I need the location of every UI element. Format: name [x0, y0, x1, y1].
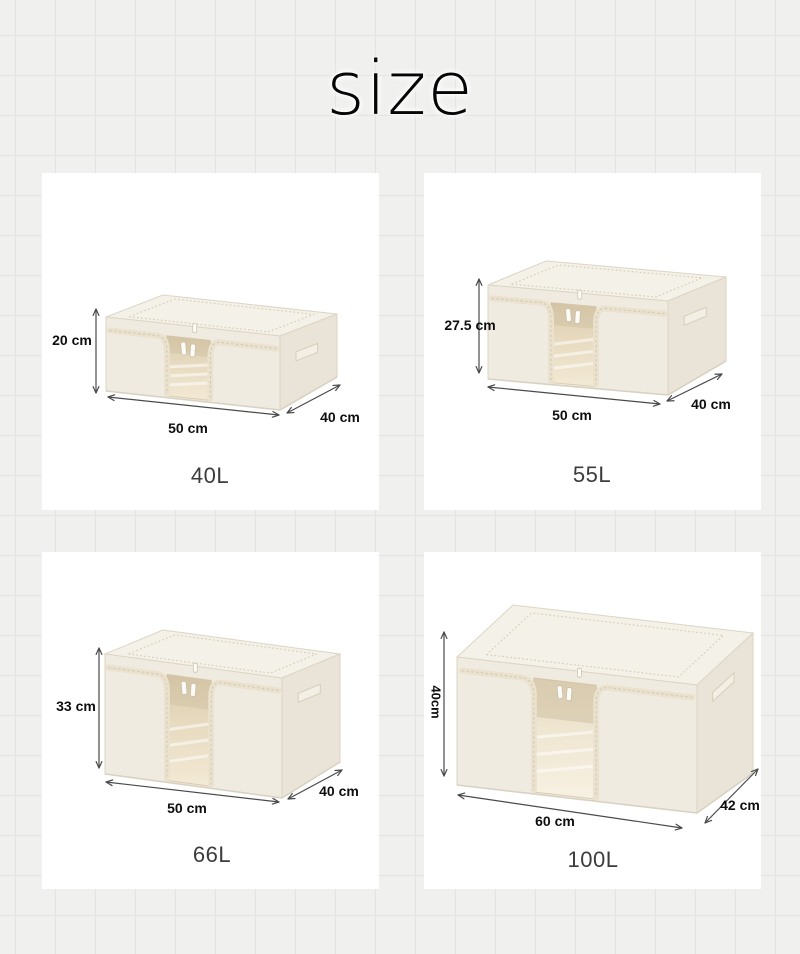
size-card-66l: 33 cm 50 cm 40 cm 66L: [42, 552, 379, 889]
storage-box-illustration: [42, 552, 379, 889]
size-card-100l: 40cm 60 cm 42 cm 100L: [424, 552, 761, 889]
height-dimension-label: 40cm: [429, 685, 444, 718]
height-dimension-label: 27.5 cm: [444, 317, 495, 333]
volume-label: 40L: [191, 463, 229, 489]
storage-box-illustration: [424, 552, 761, 889]
height-dimension-label: 20 cm: [52, 332, 92, 348]
depth-dimension-label: 40 cm: [691, 396, 731, 412]
width-dimension-label: 50 cm: [168, 420, 208, 436]
storage-box-illustration: [424, 173, 761, 510]
height-dimension-label: 33 cm: [56, 698, 96, 714]
width-dimension-label: 60 cm: [535, 813, 575, 829]
size-card-40l: 20 cm 50 cm 40 cm 40L: [42, 173, 379, 510]
size-chart-page: { "title": "size", "theme": { "arrow_col…: [0, 0, 800, 954]
depth-dimension-label: 40 cm: [320, 409, 360, 425]
depth-dimension-label: 42 cm: [720, 797, 760, 813]
size-card-55l: 27.5 cm 50 cm 40 cm 55L: [424, 173, 761, 510]
width-dimension-label: 50 cm: [167, 800, 207, 816]
width-dimension-label: 50 cm: [552, 407, 592, 423]
volume-label: 100L: [568, 847, 619, 873]
page-title: size: [0, 52, 800, 126]
depth-dimension-label: 40 cm: [319, 783, 359, 799]
volume-label: 66L: [193, 842, 231, 868]
volume-label: 55L: [573, 462, 611, 488]
storage-box-illustration: [42, 173, 379, 510]
